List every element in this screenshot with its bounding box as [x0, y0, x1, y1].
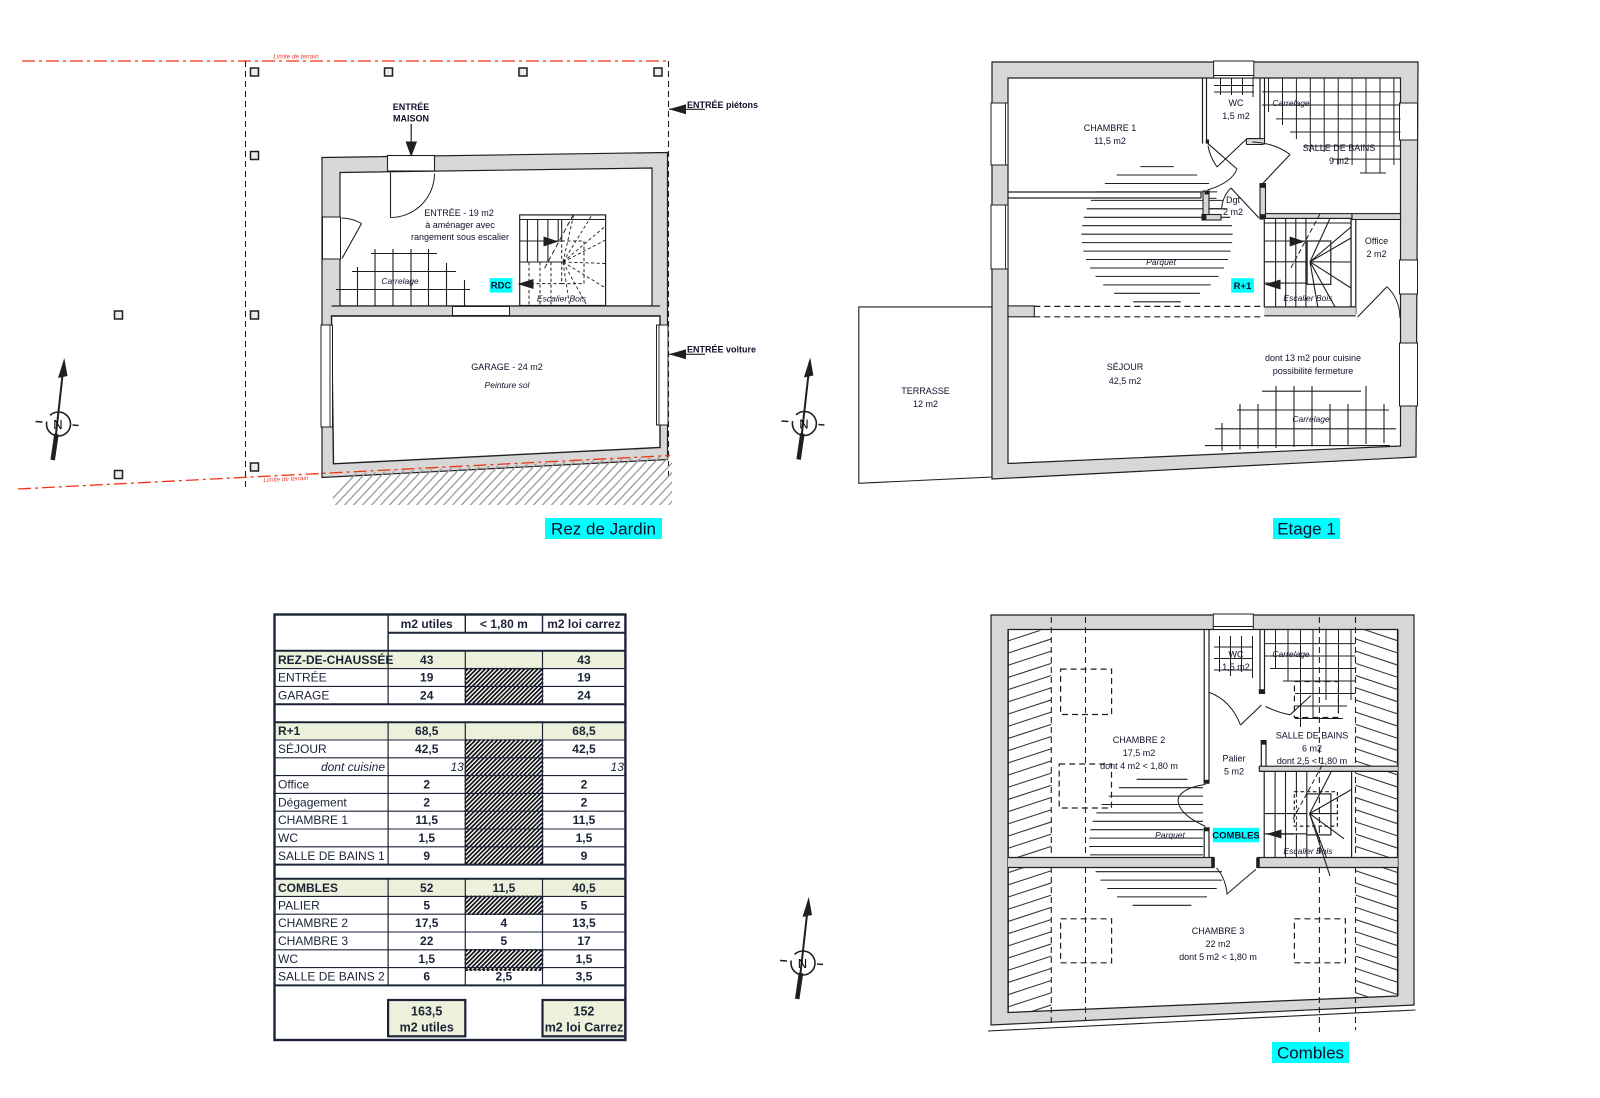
svg-text:1,5 m2: 1,5 m2	[1222, 662, 1250, 672]
svg-text:9 m2: 9 m2	[1329, 156, 1349, 166]
svg-text:SALLE DE BAINS: SALLE DE BAINS	[1276, 731, 1349, 741]
svg-text:Office: Office	[278, 778, 309, 792]
svg-text:Escalier Bois: Escalier Bois	[1283, 293, 1333, 303]
svg-text:RDC: RDC	[491, 281, 512, 292]
svg-text:19: 19	[420, 671, 434, 685]
svg-text:COMBLES: COMBLES	[278, 881, 338, 895]
svg-text:dont 4 m2 < 1,80 m: dont 4 m2 < 1,80 m	[1100, 761, 1178, 771]
svg-text:TERRASSE: TERRASSE	[901, 386, 950, 396]
svg-text:SALLE DE BAINS 2: SALLE DE BAINS 2	[278, 970, 385, 984]
svg-text:CHAMBRE 1: CHAMBRE 1	[1084, 123, 1137, 133]
svg-text:CHAMBRE 3: CHAMBRE 3	[1192, 926, 1245, 936]
svg-text:WC: WC	[1229, 98, 1244, 108]
svg-text:Office: Office	[1365, 236, 1388, 246]
svg-text:SALLE DE BAINS 1: SALLE DE BAINS 1	[278, 849, 385, 863]
svg-text:Dégagement: Dégagement	[278, 795, 347, 809]
svg-text:m2 utiles: m2 utiles	[401, 617, 453, 631]
svg-text:17,5 m2: 17,5 m2	[1123, 748, 1156, 758]
svg-text:52: 52	[420, 881, 434, 895]
svg-text:1,5 m2: 1,5 m2	[1222, 111, 1250, 121]
svg-text:42,5 m2: 42,5 m2	[1109, 376, 1142, 386]
svg-text:68,5: 68,5	[415, 724, 439, 738]
svg-text:2,5: 2,5	[496, 970, 513, 984]
svg-text:CHAMBRE 2: CHAMBRE 2	[278, 916, 348, 930]
svg-text:12 m2: 12 m2	[913, 399, 938, 409]
svg-text:m2 loi Carrez: m2 loi Carrez	[545, 1021, 624, 1035]
svg-text:possibilité fermeture: possibilité fermeture	[1273, 366, 1354, 376]
svg-text:22: 22	[420, 934, 434, 948]
svg-text:11,5: 11,5	[415, 813, 438, 827]
svg-text:ENTRÉE piétons: ENTRÉE piétons	[687, 100, 758, 110]
svg-text:ENTRÉE - 19 m2: ENTRÉE - 19 m2	[424, 208, 494, 218]
svg-text:Parquet: Parquet	[1146, 257, 1176, 267]
svg-text:2 m2: 2 m2	[1223, 207, 1243, 217]
svg-text:1,5: 1,5	[576, 952, 593, 966]
svg-text:2: 2	[423, 778, 430, 792]
svg-text:SÉJOUR: SÉJOUR	[1107, 362, 1144, 372]
svg-text:13: 13	[611, 760, 625, 774]
svg-text:3,5: 3,5	[576, 970, 593, 984]
svg-text:m2 utiles: m2 utiles	[400, 1021, 454, 1035]
svg-text:13,5: 13,5	[572, 916, 596, 930]
svg-text:1,5: 1,5	[418, 831, 435, 845]
svg-text:17: 17	[577, 934, 591, 948]
svg-text:2: 2	[423, 795, 430, 809]
svg-text:dont 2,5 < 1,80 m: dont 2,5 < 1,80 m	[1277, 756, 1347, 766]
svg-text:CHAMBRE 1: CHAMBRE 1	[278, 813, 348, 827]
svg-text:REZ-DE-CHAUSSÉE: REZ-DE-CHAUSSÉE	[278, 652, 393, 667]
svg-text:Carrelage: Carrelage	[1272, 98, 1310, 108]
svg-text:GARAGE - 24 m2: GARAGE - 24 m2	[471, 362, 543, 372]
svg-text:GARAGE: GARAGE	[278, 688, 329, 702]
svg-text:1,5: 1,5	[576, 831, 593, 845]
svg-text:13: 13	[450, 760, 464, 774]
svg-text:rangement sous escalier: rangement sous escalier	[411, 232, 509, 242]
svg-text:N: N	[799, 417, 808, 432]
svg-text:dont cuisine: dont cuisine	[321, 760, 385, 774]
svg-text:43: 43	[420, 653, 434, 667]
svg-text:6: 6	[423, 970, 430, 984]
svg-text:Dgt: Dgt	[1226, 195, 1241, 205]
svg-text:9: 9	[581, 849, 588, 863]
svg-text:R+1: R+1	[278, 724, 301, 738]
svg-text:19: 19	[577, 671, 591, 685]
svg-text:SALLE DE BAINS: SALLE DE BAINS	[1303, 143, 1376, 153]
svg-text:CHAMBRE 2: CHAMBRE 2	[1113, 735, 1166, 745]
svg-text:1,5: 1,5	[418, 952, 435, 966]
svg-text:42,5: 42,5	[415, 742, 439, 756]
svg-text:COMBLES: COMBLES	[1212, 830, 1260, 841]
svg-text:6 m2: 6 m2	[1302, 744, 1322, 754]
svg-text:40,5: 40,5	[572, 881, 596, 895]
svg-text:43: 43	[577, 653, 591, 667]
svg-text:dont 5 m2 < 1,80 m: dont 5 m2 < 1,80 m	[1179, 952, 1257, 962]
svg-text:Carrelage: Carrelage	[1292, 414, 1330, 424]
svg-text:N: N	[798, 956, 807, 971]
svg-text:SÉJOUR: SÉJOUR	[278, 741, 327, 756]
svg-text:Etage 1: Etage 1	[1277, 520, 1336, 539]
svg-text:5 m2: 5 m2	[1224, 767, 1244, 777]
svg-text:22 m2: 22 m2	[1205, 939, 1230, 949]
svg-text:ENTRÉE: ENTRÉE	[278, 670, 327, 685]
svg-text:WC: WC	[278, 952, 298, 966]
svg-text:N: N	[53, 417, 62, 432]
svg-text:68,5: 68,5	[572, 724, 596, 738]
svg-text:Peinture sol: Peinture sol	[485, 380, 531, 390]
svg-text:R+1: R+1	[1234, 281, 1252, 292]
svg-text:24: 24	[420, 688, 434, 702]
svg-text:WC: WC	[278, 831, 298, 845]
svg-text:m2 loi carrez: m2 loi carrez	[547, 617, 620, 631]
svg-text:Escalier Bois: Escalier Bois	[537, 294, 587, 304]
svg-text:11,5 m2: 11,5 m2	[1094, 136, 1126, 146]
svg-text:2: 2	[581, 795, 588, 809]
svg-text:2 m2: 2 m2	[1366, 249, 1386, 259]
svg-text:Carrelage: Carrelage	[381, 276, 419, 286]
svg-text:5: 5	[501, 934, 508, 948]
svg-text:< 1,80 m: < 1,80 m	[480, 617, 528, 631]
svg-text:5: 5	[423, 898, 430, 912]
svg-text:Escalier Bois: Escalier Bois	[1283, 846, 1333, 856]
svg-text:152: 152	[574, 1005, 595, 1019]
svg-text:CHAMBRE 3: CHAMBRE 3	[278, 934, 348, 948]
svg-text:9: 9	[423, 849, 430, 863]
svg-text:11,5: 11,5	[573, 813, 596, 827]
svg-text:Palier: Palier	[1222, 754, 1245, 764]
svg-text:Limite de terrain: Limite de terrain	[273, 54, 319, 61]
svg-text:2: 2	[581, 778, 588, 792]
svg-text:17,5: 17,5	[415, 916, 439, 930]
svg-text:à aménager avec: à aménager avec	[425, 220, 495, 230]
svg-text:5: 5	[581, 898, 588, 912]
svg-text:dont 13 m2 pour cuisine: dont 13 m2 pour cuisine	[1265, 353, 1361, 363]
svg-text:42,5: 42,5	[572, 742, 596, 756]
svg-text:4: 4	[501, 916, 508, 930]
svg-text:PALIER: PALIER	[278, 898, 320, 912]
svg-text:163,5: 163,5	[411, 1005, 442, 1019]
svg-text:Parquet: Parquet	[1155, 830, 1185, 840]
svg-text:Carrelage: Carrelage	[1272, 649, 1310, 659]
svg-text:24: 24	[577, 688, 591, 702]
svg-text:Rez de Jardin: Rez de Jardin	[551, 520, 656, 539]
svg-text:11,5: 11,5	[493, 881, 516, 895]
svg-text:ENTRÉE voiture: ENTRÉE voiture	[687, 344, 756, 354]
svg-text:MAISON: MAISON	[393, 114, 429, 124]
svg-text:WC: WC	[1229, 650, 1244, 660]
svg-text:ENTRÉE: ENTRÉE	[393, 102, 430, 112]
svg-text:Combles: Combles	[1277, 1044, 1344, 1063]
